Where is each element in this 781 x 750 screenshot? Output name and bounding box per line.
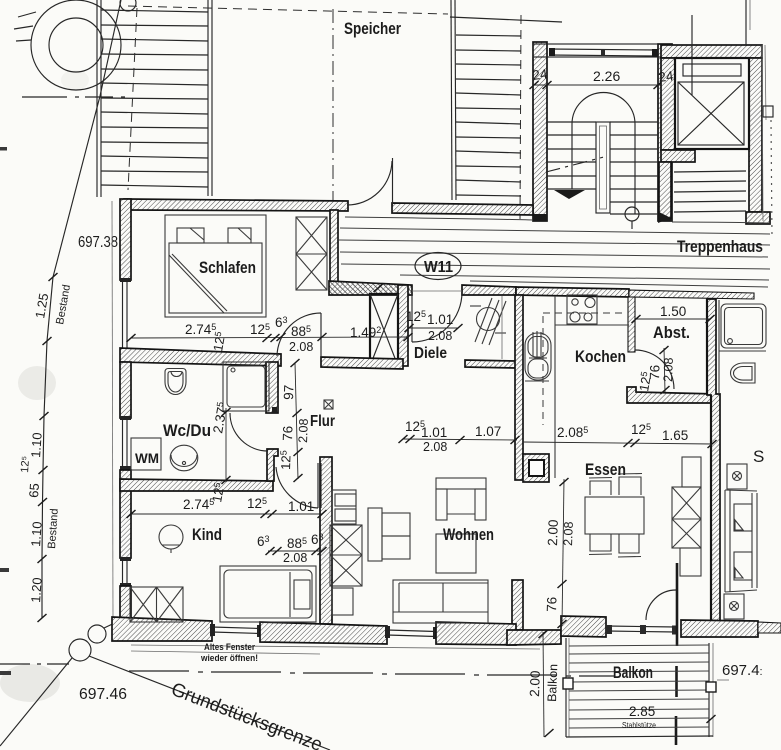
- svg-text:12⁵: 12⁵: [19, 456, 32, 474]
- svg-text:WM: WM: [135, 451, 159, 466]
- svg-text:697.46: 697.46: [79, 686, 127, 703]
- svg-text:2.08: 2.08: [283, 551, 307, 565]
- svg-text:Altes Fenster: Altes Fenster: [204, 642, 255, 653]
- svg-text:24: 24: [658, 68, 675, 85]
- svg-text:Diele: Diele: [414, 345, 447, 362]
- svg-text:65: 65: [26, 483, 42, 498]
- svg-text:Flur: Flur: [310, 413, 335, 430]
- svg-text:1.01: 1.01: [288, 499, 314, 514]
- svg-text:Essen: Essen: [585, 460, 626, 479]
- svg-text:S: S: [753, 447, 764, 466]
- svg-text:Wc/Du: Wc/Du: [163, 421, 211, 440]
- svg-text:1.20: 1.20: [28, 577, 45, 603]
- svg-text:2.08: 2.08: [289, 340, 313, 354]
- svg-text:Treppenhaus: Treppenhaus: [677, 238, 763, 256]
- svg-text:2.00: 2.00: [545, 519, 561, 546]
- svg-text:2.08: 2.08: [428, 329, 452, 343]
- svg-text:76: 76: [280, 426, 296, 442]
- svg-text:24: 24: [532, 66, 549, 83]
- svg-text:76: 76: [544, 597, 560, 613]
- svg-text:Wohnen: Wohnen: [443, 525, 494, 544]
- svg-text:697.4:: 697.4:: [722, 662, 763, 679]
- svg-text:1.01: 1.01: [421, 425, 447, 440]
- svg-text:Schlafen: Schlafen: [199, 258, 256, 277]
- svg-text:2.26: 2.26: [593, 68, 620, 84]
- svg-text:Abst.: Abst.: [653, 323, 690, 342]
- svg-text:1.65: 1.65: [662, 428, 688, 443]
- svg-text:wieder öffnen!: wieder öffnen!: [200, 653, 258, 664]
- svg-text:Kind: Kind: [192, 525, 222, 544]
- svg-text:2.08: 2.08: [296, 418, 311, 443]
- svg-text:2.08: 2.08: [661, 357, 676, 382]
- svg-text:1.01: 1.01: [427, 312, 453, 327]
- svg-text:2.08: 2.08: [561, 521, 576, 546]
- svg-text:Speicher: Speicher: [344, 19, 401, 38]
- svg-text:2.85: 2.85: [629, 704, 655, 719]
- svg-text:1.10: 1.10: [28, 521, 45, 547]
- svg-text:2.08: 2.08: [423, 440, 447, 454]
- svg-text:1.10: 1.10: [28, 432, 45, 458]
- svg-text:1.07: 1.07: [475, 424, 501, 439]
- svg-text:97: 97: [281, 385, 297, 401]
- svg-text:Balkon: Balkon: [613, 664, 653, 682]
- svg-text:Stahlstütze: Stahlstütze: [622, 720, 656, 730]
- svg-text:Balkon: Balkon: [545, 664, 560, 702]
- svg-text:Kochen: Kochen: [575, 347, 626, 366]
- svg-text:1.50: 1.50: [660, 304, 686, 319]
- svg-text:2.00: 2.00: [527, 670, 543, 697]
- svg-text:W11: W11: [424, 259, 453, 276]
